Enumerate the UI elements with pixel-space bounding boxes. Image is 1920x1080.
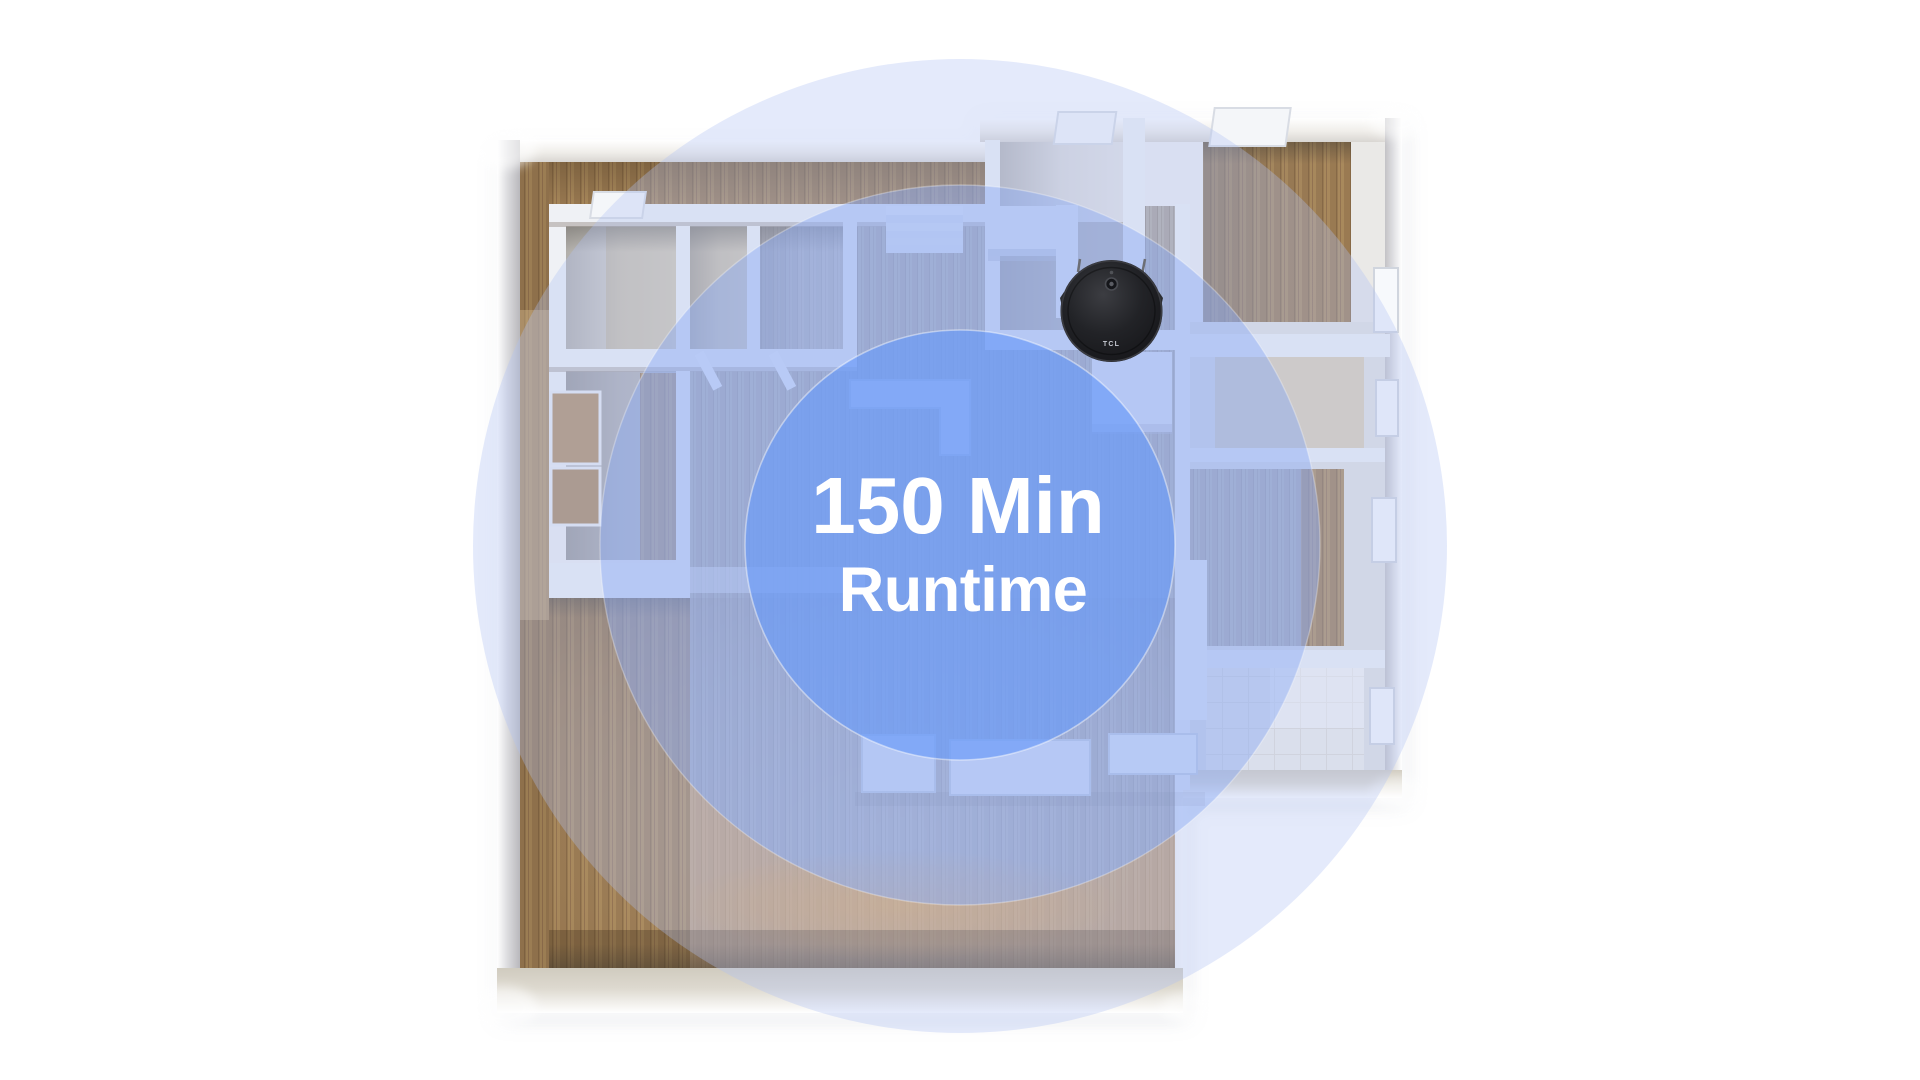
svg-text:150 Min: 150 Min (811, 461, 1104, 550)
svg-text:Runtime: Runtime (839, 555, 1088, 625)
svg-text:TCL: TCL (1103, 341, 1120, 348)
